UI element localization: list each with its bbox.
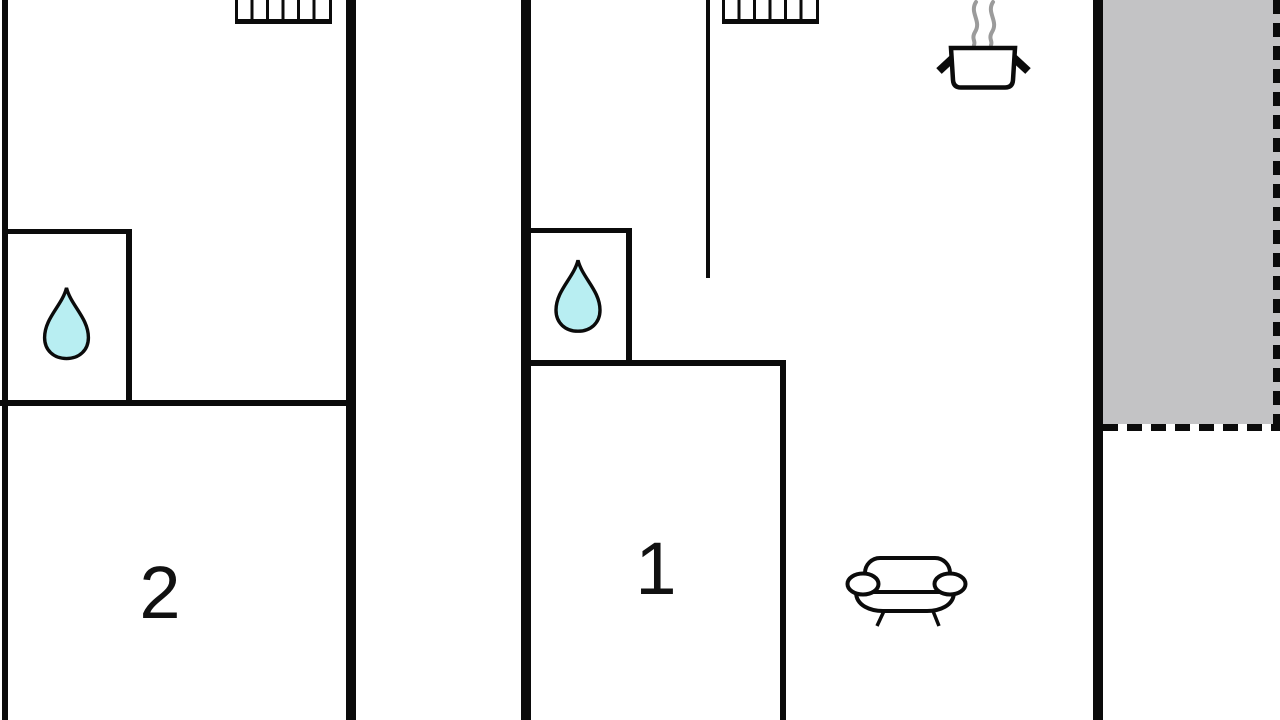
- wall-bathroom1-right: [626, 228, 632, 365]
- room1-label: 1: [635, 532, 676, 606]
- water-drop-icon-room2: [44, 286, 89, 360]
- wall-room2-divider: [0, 400, 356, 406]
- sofa-leg-left: [877, 611, 884, 626]
- pot-body: [951, 48, 1015, 88]
- sofa-armrest-left: [848, 574, 879, 595]
- sofa-armrest-right: [935, 574, 966, 595]
- wall-entry-partition: [706, 0, 710, 278]
- wall-room2-right: [346, 0, 356, 720]
- floor-plan: 2 1: [0, 0, 1280, 720]
- room2-label: 2: [139, 556, 180, 630]
- wall-living-room-right: [1093, 0, 1103, 720]
- sofa-icon: [840, 550, 970, 630]
- wall-bathroom1-top: [528, 228, 631, 233]
- steam-line-2: [990, 2, 994, 45]
- wall-bathroom2-right: [126, 229, 132, 406]
- wall-room1-right: [780, 360, 786, 720]
- terrace-area: [1103, 0, 1280, 424]
- cooking-pot-icon: [930, 0, 1035, 95]
- steam-line-1: [973, 2, 977, 45]
- radiator-icon-middle: [722, 0, 819, 24]
- wall-room1-top: [521, 360, 786, 366]
- sofa-leg-right: [933, 611, 939, 626]
- wall-bathroom2-top: [5, 229, 132, 234]
- wall-outer-left: [2, 0, 8, 720]
- radiator-icon-left: [235, 0, 332, 24]
- water-drop-icon-room1: [556, 257, 600, 334]
